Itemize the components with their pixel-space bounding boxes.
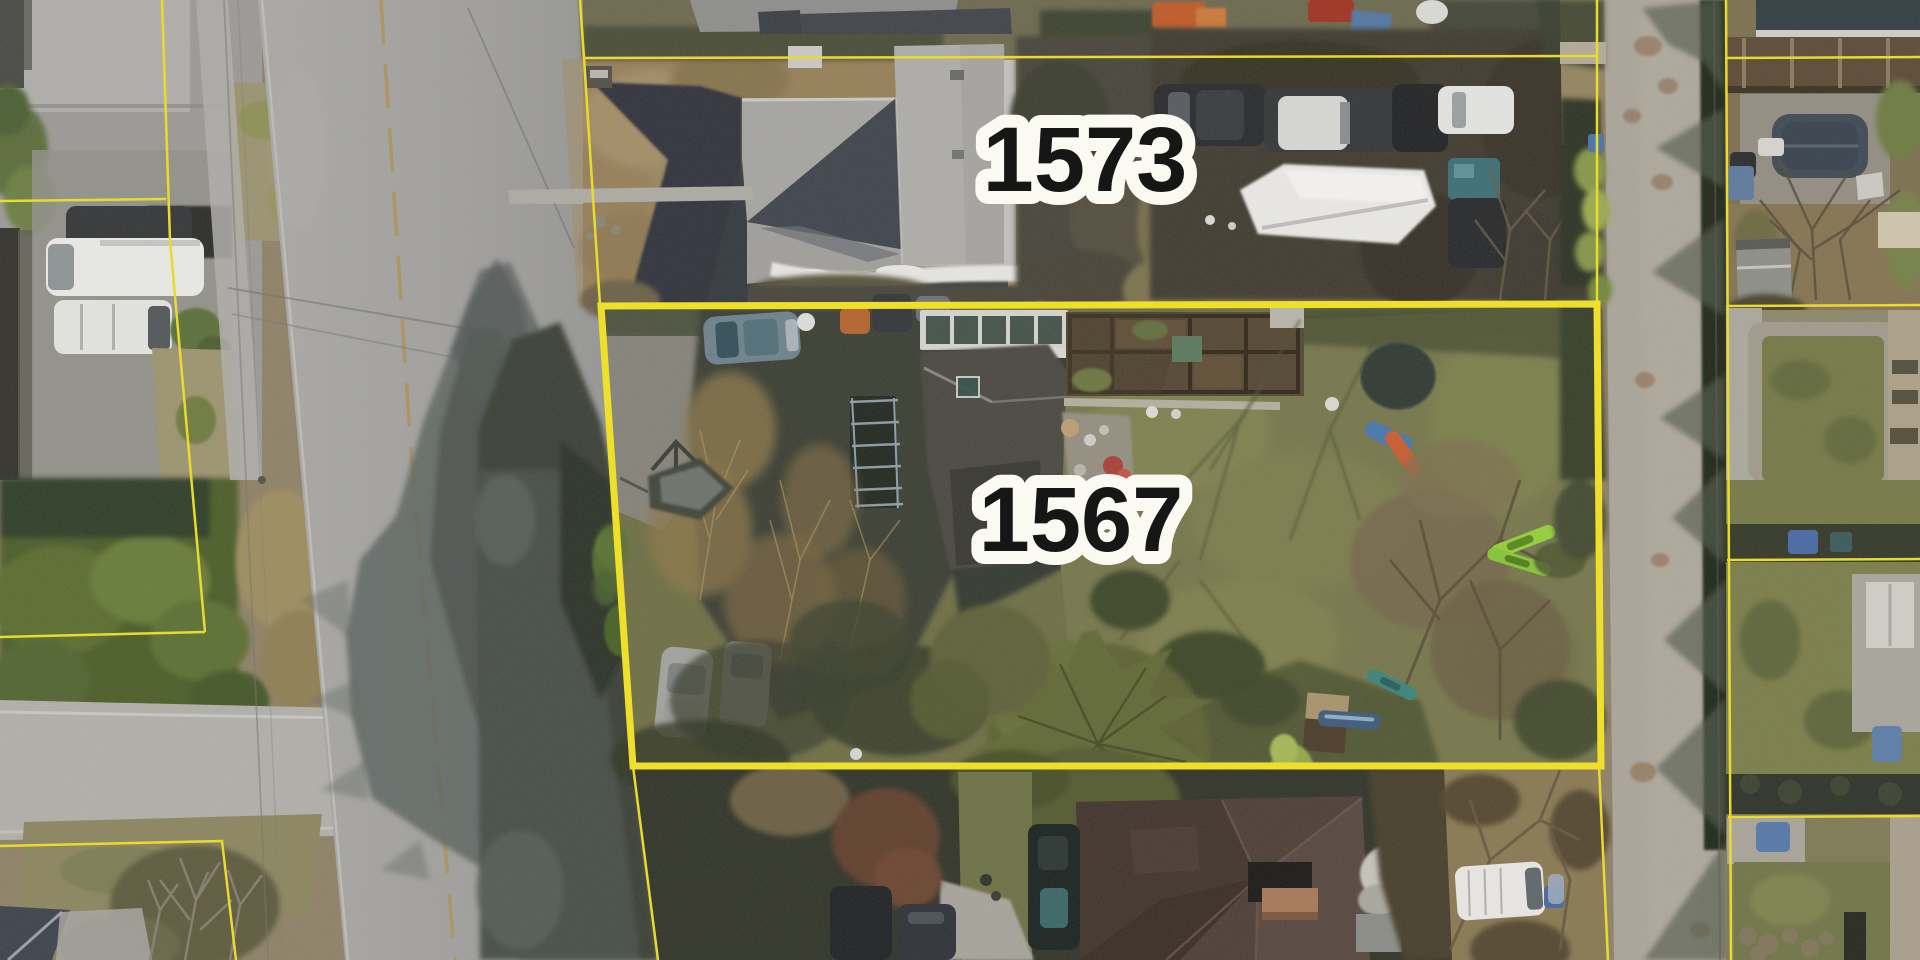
svg-text:1573: 1573 [983,109,1188,211]
svg-text:1567: 1567 [979,469,1184,571]
